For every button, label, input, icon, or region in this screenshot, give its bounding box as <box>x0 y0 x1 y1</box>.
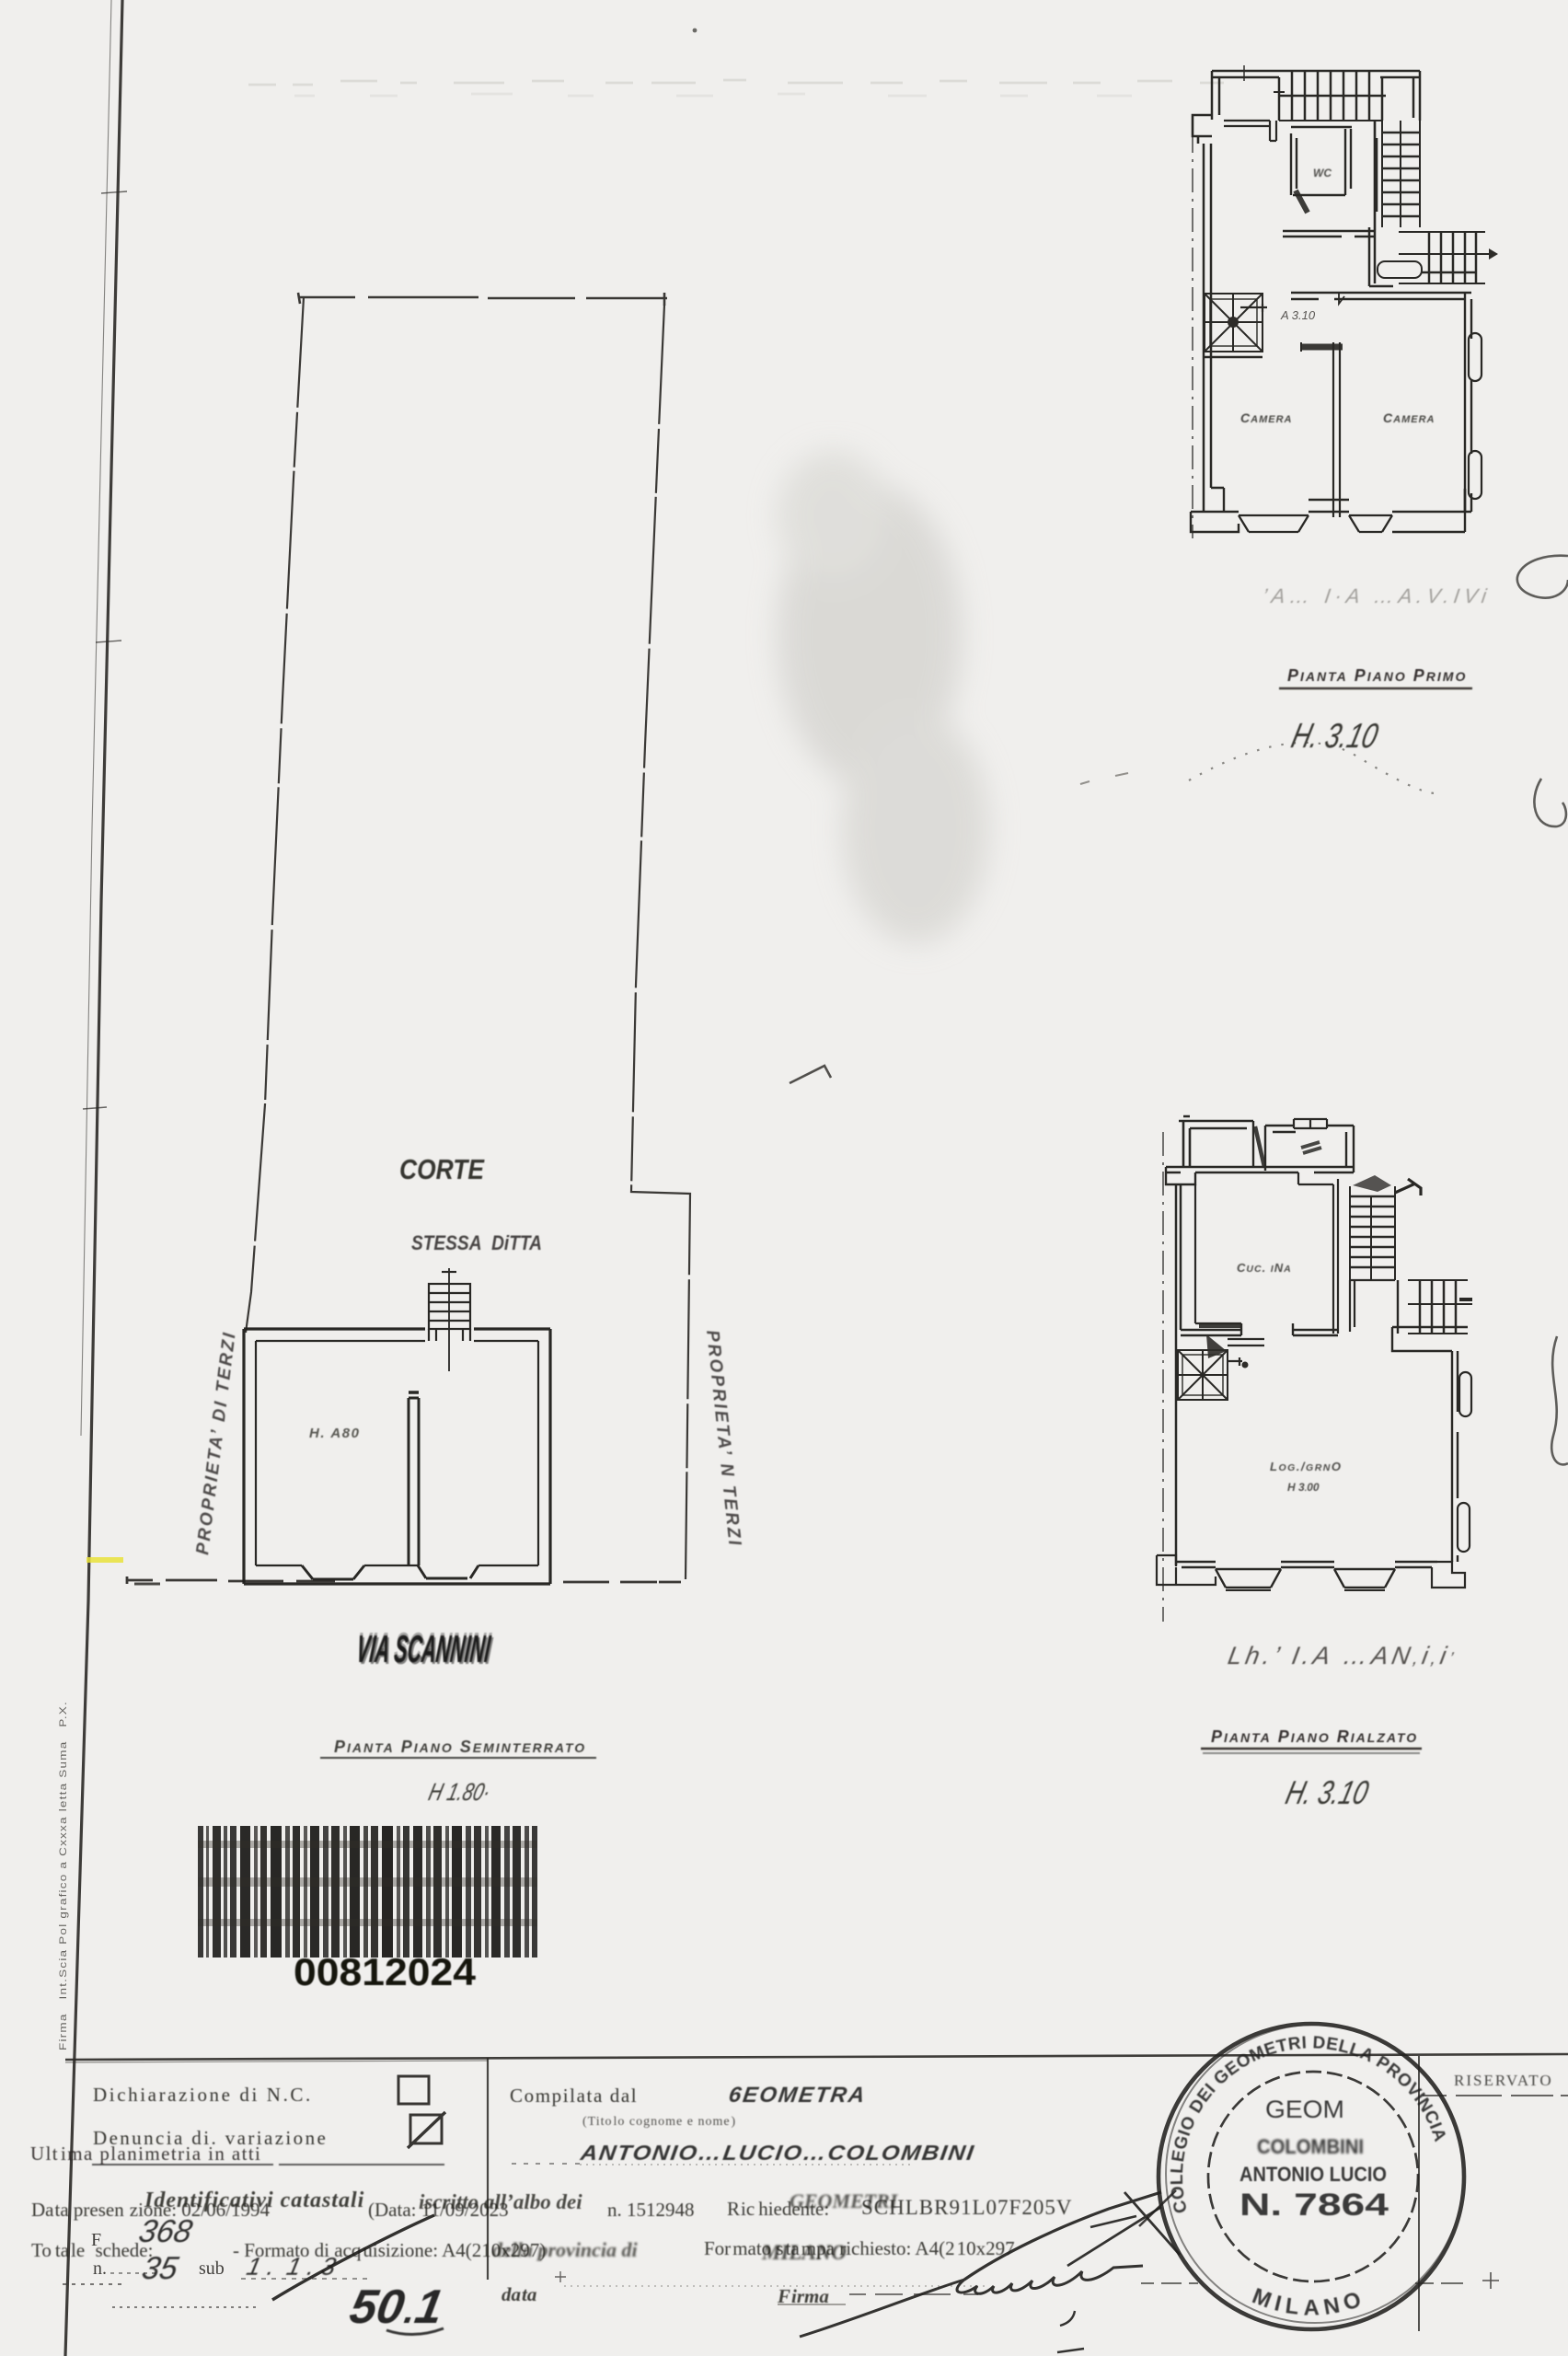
svg-text:F: F <box>91 2230 101 2250</box>
svg-text:Identificativi catastali: Identificativi catastali <box>144 2189 364 2212</box>
svg-text:n. 1512948: n. 1512948 <box>607 2199 695 2221</box>
svg-text:H 1.80·: H 1.80· <box>426 1777 494 1806</box>
svg-text:Compilata dal: Compilata dal <box>510 2085 638 2107</box>
svg-text:’A… I·A …A.V.IVi: ’A… I·A …A.V.IVi <box>1261 584 1493 607</box>
svg-text:sub: sub <box>199 2258 225 2279</box>
svg-text:ANTONIO…LUCIO…COLOMBINI: ANTONIO…LUCIO…COLOMBINI <box>578 2141 976 2165</box>
svg-text:A 3.10: A 3.10 <box>1280 308 1316 322</box>
svg-text:H. A80: H. A80 <box>309 1426 360 1441</box>
svg-text:n.: n. <box>93 2258 107 2279</box>
svg-text:STESSA DiTTA: STESSA DiTTA <box>411 1231 542 1254</box>
svg-text:50.1: 50.1 <box>346 2281 447 2334</box>
svg-text:Lh.’ I.A …AN,i,i’: Lh.’ I.A …AN,i,i’ <box>1226 1641 1459 1669</box>
svg-text:H. 3.10: H. 3.10 <box>1287 717 1382 756</box>
svg-text:CUC. INA: CUC. INA <box>1237 1261 1292 1275</box>
svg-text:PIANTA PIANO SEMINTERRATO: PIANTA PIANO SEMINTERRATO <box>334 1738 586 1756</box>
svg-text:GEOMETRI: GEOMETRI <box>790 2189 899 2212</box>
svg-text:1 . 1 . 3: 1 . 1 . 3 <box>244 2252 339 2281</box>
svg-text:LOG./GRNO: LOG./GRNO <box>1270 1460 1343 1473</box>
svg-text:CORTE: CORTE <box>399 1153 485 1185</box>
svg-text:VIA SCANNINI: VIA SCANNINI <box>355 1624 494 1668</box>
svg-text:COLOMBINI: COLOMBINI <box>1257 2135 1364 2158</box>
svg-text:GEOM: GEOM <box>1265 2096 1344 2123</box>
svg-text:6EOMETRA: 6EOMETRA <box>727 2083 868 2108</box>
svg-text:00812024: 00812024 <box>294 1950 477 1993</box>
svg-text:della provincia di: della provincia di <box>492 2238 639 2261</box>
svg-text:WC: WC <box>1313 167 1332 179</box>
svg-text:iscritto all’albo dei: iscritto all’albo dei <box>419 2190 582 2213</box>
svg-text:Firma Int.Scia Pol grafico a: Firma Int.Scia Pol grafico a Cxxxa letta… <box>58 1701 69 2050</box>
svg-text:MILANO: MILANO <box>761 2241 847 2264</box>
svg-text:data: data <box>502 2283 536 2305</box>
svg-text:Ultima planimetria in atti: Ultima planimetria in atti <box>30 2142 261 2165</box>
svg-text:H. 3.10: H. 3.10 <box>1282 1774 1373 1811</box>
svg-text:N. 7864: N. 7864 <box>1239 2188 1389 2223</box>
svg-text:368: 368 <box>136 2214 196 2249</box>
svg-text:RISERVATO: RISERVATO <box>1454 2072 1553 2089</box>
svg-text:(Titolo cognome e nome): (Titolo cognome e nome) <box>582 2115 736 2129</box>
svg-text:ANTONIO LUCIO: ANTONIO LUCIO <box>1239 2163 1387 2186</box>
svg-text:PIANTA PIANO PRIMO: PIANTA PIANO PRIMO <box>1287 666 1467 685</box>
svg-text:PIANTA PIANO RIALZATO: PIANTA PIANO RIALZATO <box>1211 1727 1418 1746</box>
svg-text:Formato stampa richiesto: A4(2: Formato stampa richiesto: A4(210x297 <box>704 2237 1015 2259</box>
svg-text:Dichiarazione di N.C.: Dichiarazione di N.C. <box>93 2084 313 2106</box>
svg-text:H 3.00: H 3.00 <box>1287 1481 1320 1494</box>
